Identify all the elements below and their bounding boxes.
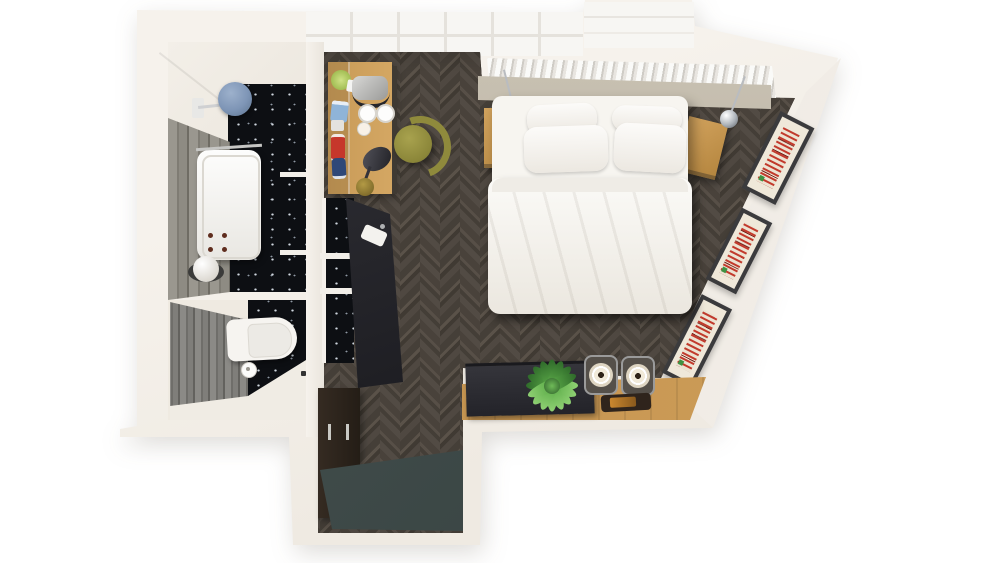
pillow-front-right — [613, 122, 687, 174]
cabinet-handle — [328, 424, 331, 440]
floorplan-stage — [0, 0, 1000, 563]
glass — [357, 122, 371, 136]
kitchen-faucet — [380, 224, 385, 229]
splashback-rail — [320, 288, 352, 294]
duvet-fold — [492, 178, 688, 192]
splashback-rail — [320, 253, 352, 259]
plant-center — [544, 378, 560, 394]
terrazzo-rail — [280, 172, 308, 177]
cabinet-handle — [346, 424, 349, 440]
speaker-cone — [626, 364, 650, 388]
pendant-right — [720, 110, 738, 128]
speaker-cone — [589, 363, 613, 387]
coffered-top-wall — [306, 12, 583, 56]
speaker-right — [621, 356, 655, 396]
toy-car-blue — [331, 158, 346, 180]
window-bay — [584, 2, 694, 48]
tap-handle — [222, 233, 227, 238]
toilet-paper-core — [246, 367, 250, 371]
tap-handle — [208, 233, 213, 238]
coffee-cup — [376, 104, 395, 123]
duvet — [488, 178, 692, 314]
coffee-cup — [358, 104, 377, 123]
terrazzo-rail — [280, 250, 308, 255]
tap-handle — [208, 247, 213, 252]
tap-handle — [222, 247, 227, 252]
small-box — [331, 120, 344, 131]
speaker-left — [584, 355, 618, 395]
toilet-seat — [247, 322, 293, 358]
pillow-front-left — [523, 125, 609, 174]
sphere-lamp — [193, 256, 219, 282]
rain-shower-head — [218, 82, 252, 116]
bathtub-rim — [202, 155, 260, 259]
phone — [610, 396, 636, 407]
desk-chair — [394, 125, 432, 163]
desk-lamp-base — [356, 178, 374, 196]
phone-tray — [601, 393, 652, 413]
